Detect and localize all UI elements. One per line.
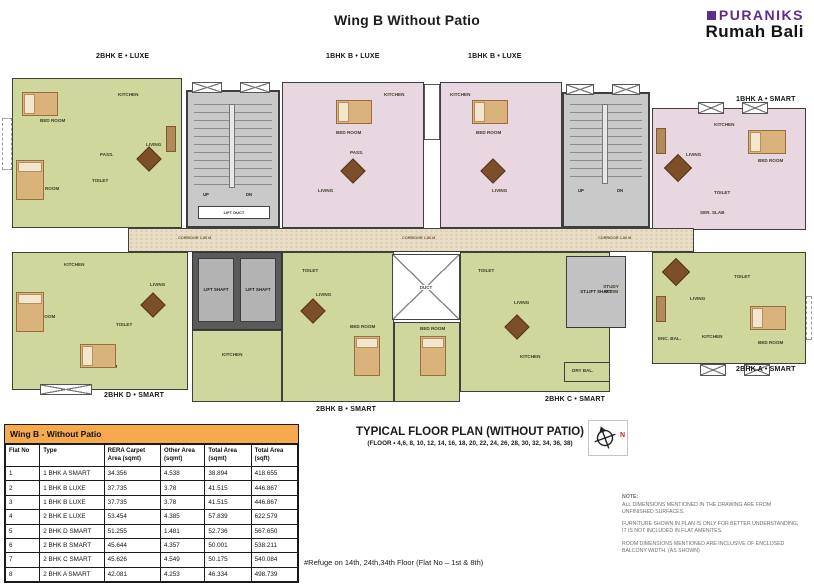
sofa-icon xyxy=(656,296,666,322)
room-label-living: LIVING xyxy=(492,188,507,193)
room-label-dry-bal: DRY BAL. xyxy=(572,368,593,373)
room-label-pass: PASS. xyxy=(350,150,363,155)
table-column-header: Total Area (sqft) xyxy=(251,445,297,467)
vent-xbox xyxy=(40,384,92,395)
room-label-bedroom: BED ROOM xyxy=(758,158,783,163)
vent-xbox xyxy=(700,364,726,376)
table-cell: 1 BHK B LUXE xyxy=(40,481,104,495)
table-cell: 38.894 xyxy=(205,467,251,481)
unit-label-1bhk-b-luxe-left: 1BHK B • LUXE xyxy=(326,53,380,60)
table-cell: 2 BHK E LUXE xyxy=(40,510,104,524)
table-cell: 8 xyxy=(6,567,40,581)
room-label-kitchen: KITCHEN xyxy=(64,262,84,267)
table-cell: 418.655 xyxy=(251,467,297,481)
room-label-living: LIVING xyxy=(686,152,701,157)
unit-label-2bhk-a-smart: 2BHK A • SMART xyxy=(736,366,796,373)
table-cell: 4 xyxy=(6,510,40,524)
table-cell: 2 BHK C SMART xyxy=(40,553,104,567)
table-cell: 446.867 xyxy=(251,495,297,509)
note-item: ROOM DIMENSIONS MENTIONED ARE INCLUSIVE … xyxy=(622,541,804,555)
stair-dn-label: DN xyxy=(617,188,623,193)
table-cell: 1 BHK B LUXE xyxy=(40,495,104,509)
table-row: 42 BHK E LUXE53.4544.38557.839622.579 xyxy=(6,510,298,524)
bed-icon xyxy=(472,100,508,124)
compass-icon: N xyxy=(588,420,628,456)
table-cell: 538.211 xyxy=(251,538,297,552)
table-cell: 1.481 xyxy=(161,524,205,538)
table-cell: 3.78 xyxy=(161,495,205,509)
table-column-header: Type xyxy=(40,445,104,467)
areas-table-title: Wing B - Without Patio xyxy=(5,425,298,444)
unit-2bhk-b-smart-kitchen-wing xyxy=(192,330,282,402)
unit-label-1bhk-a-smart: 1BHK A • SMART xyxy=(736,96,796,103)
bed-icon xyxy=(420,336,446,376)
corridor-label: CORRIDOR 1.80 M xyxy=(178,236,211,240)
room-label-living: LIVING xyxy=(150,282,165,287)
vent-xbox xyxy=(192,82,222,93)
stair-divider xyxy=(229,104,235,188)
central-duct: DUCT xyxy=(392,254,460,320)
bed-icon xyxy=(16,292,44,332)
room-label-kitchen: KITCHEN xyxy=(118,92,138,97)
table-row: 11 BHK A SMART34.3564.53838.894418.655 xyxy=(6,467,298,481)
note-item: ALL DIMENSIONS MENTIONED IN THE DRAWING … xyxy=(622,502,804,516)
room-label-ser-slab: SER. SLAB xyxy=(700,210,725,215)
room-label-toilet: TOILET xyxy=(302,268,318,273)
table-cell: 46.334 xyxy=(205,567,251,581)
vent-xbox xyxy=(612,84,640,95)
table-column-header: Total Area (sqmt) xyxy=(205,445,251,467)
room-label-toilet: TOILET xyxy=(714,190,730,195)
table-cell: 4.253 xyxy=(161,567,205,581)
unit-label-2bhk-b-smart: 2BHK B • SMART xyxy=(316,406,376,413)
unit-label-2bhk-c-smart: 2BHK C • SMART xyxy=(545,396,605,403)
table-cell: 1 xyxy=(6,467,40,481)
bed-icon xyxy=(80,344,116,368)
table-row: 72 BHK C SMART45.6264.54950.175540.084 xyxy=(6,553,298,567)
areas-table-container: Wing B - Without Patio Flat NoTypeRERA C… xyxy=(4,424,299,583)
table-cell: 42.081 xyxy=(104,567,160,581)
bed-icon xyxy=(750,306,786,330)
room-label-kitchen: KITCHEN xyxy=(714,122,734,127)
room-label-bedroom: BED ROOM xyxy=(350,324,375,329)
table-cell: 498.739 xyxy=(251,567,297,581)
unit-label-2bhk-d-smart: 2BHK D • SMART xyxy=(104,392,164,399)
table-cell: 50.175 xyxy=(205,553,251,567)
table-cell: 37.735 xyxy=(104,481,160,495)
room-label-toilet: TOILET xyxy=(92,178,108,183)
room-label-pass: PASS. xyxy=(100,152,113,157)
room-label-bedroom: BED ROOM xyxy=(336,130,361,135)
table-row: 52 BHK D SMART51.2551.48152.736567.650 xyxy=(6,524,298,538)
lift-shaft-2: LIFT SHAFT xyxy=(240,258,276,322)
room-label-kitchen: KITCHEN xyxy=(520,354,540,359)
vent-xbox xyxy=(698,102,724,114)
table-cell: 52.736 xyxy=(205,524,251,538)
table-cell: 6 xyxy=(6,538,40,552)
table-cell: 4.385 xyxy=(161,510,205,524)
brand-square-icon xyxy=(707,11,716,20)
lift-duct-label: LIFT DUCT xyxy=(198,206,270,219)
room-label-living: LIVING xyxy=(318,188,333,193)
room-label-toilet: TOILET xyxy=(116,322,132,327)
notes-block: NOTE: ALL DIMENSIONS MENTIONED IN THE DR… xyxy=(622,494,804,560)
balcony-dashed-line xyxy=(2,118,12,170)
stair-divider xyxy=(602,104,608,184)
table-cell: 41.515 xyxy=(205,481,251,495)
table-cell: 3 xyxy=(6,495,40,509)
stair-up-label: UP xyxy=(203,192,209,197)
table-body: 11 BHK A SMART34.3564.53838.894418.65521… xyxy=(6,467,298,582)
room-label-kitchen: KITCHEN xyxy=(702,334,722,339)
room-label-kitchen: KITCHEN xyxy=(222,352,242,357)
brand-product-name: Rumah Bali xyxy=(705,23,804,41)
table-cell: 5 xyxy=(6,524,40,538)
table-cell: 540.084 xyxy=(251,553,297,567)
table-cell: 2 BHK A SMART xyxy=(40,567,104,581)
room-label-living: LIVING xyxy=(316,292,331,297)
corridor-label: CORRIDOR 1.80 M xyxy=(598,236,631,240)
table-cell: 4.549 xyxy=(161,553,205,567)
unit-label-2bhk-e-luxe: 2BHK E • LUXE xyxy=(96,53,149,60)
corridor-label: CORRIDOR 1.80 M xyxy=(402,236,435,240)
table-cell: 34.356 xyxy=(104,467,160,481)
bed-icon xyxy=(16,160,44,200)
table-row: 62 BHK B SMART45.6444.35750.001538.211 xyxy=(6,538,298,552)
room-label-toilet: TOILET xyxy=(478,268,494,273)
table-cell: 7 xyxy=(6,553,40,567)
room-label-bedroom: BED ROOM xyxy=(476,130,501,135)
unit-label-1bhk-b-luxe-right: 1BHK B • LUXE xyxy=(468,53,522,60)
table-cell: 2 BHK D SMART xyxy=(40,524,104,538)
page-title: Wing B Without Patio xyxy=(0,12,814,28)
table-column-header: RERA Carpet Area (sqmt) xyxy=(104,445,160,467)
room-label-bedroom: BED ROOM xyxy=(40,118,65,123)
sofa-icon xyxy=(656,128,666,154)
refuge-note: #Refuge on 14th, 24th,34th Floor (Flat N… xyxy=(304,558,483,567)
table-cell: 45.644 xyxy=(104,538,160,552)
room-label-kitchen: KITCHEN xyxy=(450,92,470,97)
table-cell: 2 xyxy=(6,481,40,495)
vent-xbox xyxy=(742,102,768,114)
table-column-header: Other Area (sqmt) xyxy=(161,445,205,467)
vent-xbox xyxy=(240,82,270,93)
vent-xbox xyxy=(566,84,594,95)
table-cell: 567.650 xyxy=(251,524,297,538)
room-label-living: LIVING xyxy=(514,300,529,305)
notes-heading: NOTE: xyxy=(622,494,804,501)
stair-up-label: UP xyxy=(578,188,584,193)
table-cell: 622.579 xyxy=(251,510,297,524)
central-duct-column xyxy=(424,84,440,140)
brand-logo: PURANIKS Rumah Bali xyxy=(705,8,804,41)
table-cell: 37.735 xyxy=(104,495,160,509)
bed-icon xyxy=(336,100,372,124)
stair-dn-label: DN xyxy=(246,192,252,197)
corridor xyxy=(128,228,694,252)
table-cell: 2 BHK B SMART xyxy=(40,538,104,552)
table-cell: 4.357 xyxy=(161,538,205,552)
bed-icon xyxy=(354,336,380,376)
sofa-icon xyxy=(166,126,176,152)
table-cell: 4.538 xyxy=(161,467,205,481)
table-cell: 446.867 xyxy=(251,481,297,495)
table-cell: 50.001 xyxy=(205,538,251,552)
bed-icon xyxy=(748,130,786,154)
compass-north-label: N xyxy=(620,432,625,439)
table-row: 82 BHK A SMART42.0814.25346.334498.739 xyxy=(6,567,298,581)
unit-2bhk-b-smart xyxy=(282,252,394,402)
table-cell: 1 BHK A SMART xyxy=(40,467,104,481)
room-label-enc-bal: ENC. BAL. xyxy=(658,336,681,341)
areas-table: Flat NoTypeRERA Carpet Area (sqmt)Other … xyxy=(5,444,298,582)
table-row: 21 BHK B LUXE37.7353.7841.515446.867 xyxy=(6,481,298,495)
table-cell: 41.515 xyxy=(205,495,251,509)
bed-icon xyxy=(22,92,58,116)
table-cell: 53.454 xyxy=(104,510,160,524)
room-label-study: STUDY ROOM xyxy=(596,284,626,294)
lift-shaft-1: LIFT SHAFT xyxy=(198,258,234,322)
table-cell: 3.78 xyxy=(161,481,205,495)
note-item: FURNITURE SHOWN IN PLAN IS ONLY FOR BETT… xyxy=(622,521,804,535)
room-label-bedroom: BED ROOM xyxy=(420,326,445,331)
floor-plan-page: Wing B Without Patio PURANIKS Rumah Bali… xyxy=(0,0,814,585)
room-label-living: LIVING xyxy=(690,296,705,301)
brand-name: PURANIKS xyxy=(705,8,804,23)
table-cell: 57.839 xyxy=(205,510,251,524)
table-cell: 45.626 xyxy=(104,553,160,567)
table-cell: 51.255 xyxy=(104,524,160,538)
room-label-bedroom: BED ROOM xyxy=(758,340,783,345)
table-header-row: Flat NoTypeRERA Carpet Area (sqmt)Other … xyxy=(6,445,298,467)
table-column-header: Flat No xyxy=(6,445,40,467)
room-label-kitchen: KITCHEN xyxy=(384,92,404,97)
room-label-toilet: TOILET xyxy=(734,274,750,279)
balcony-dashed-line xyxy=(806,296,812,340)
table-row: 31 BHK B LUXE37.7353.7841.515446.867 xyxy=(6,495,298,509)
